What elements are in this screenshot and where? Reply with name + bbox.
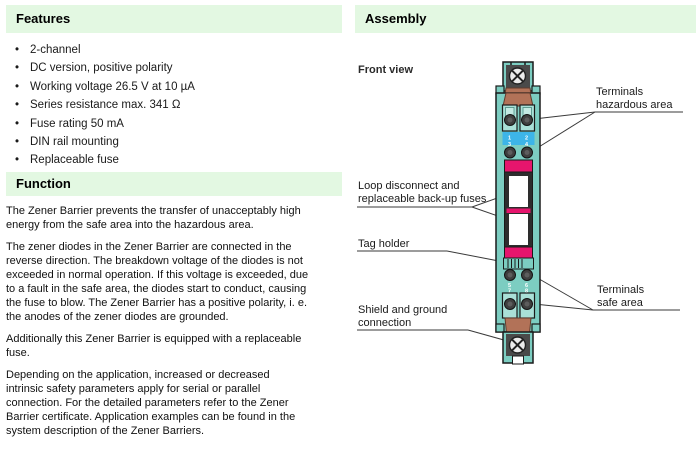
terminal-screw-center [508,150,513,155]
terminal-screw-center [525,302,530,307]
fuse-window-1 [509,176,528,207]
callout-terminals-safe: Terminals safe area [597,284,644,310]
front-view-label: Front view [358,64,413,76]
datasheet-page: Features •2-channel •DC version, positiv… [0,0,700,455]
callout-shield-ground: Shield and ground connection [358,304,447,330]
callout-terminals-hazardous: Terminals hazardous area [596,86,672,112]
fuse-pink-band-top [505,160,533,172]
terminal-screw-center [508,273,513,278]
terminal-screw-center [508,302,513,307]
terminal-screw-center [525,273,530,278]
callout-tag-holder: Tag holder [358,238,409,251]
bottom-shoulder [496,324,504,332]
fuse-divider [507,209,531,214]
terminal-number: 2 [525,136,528,142]
terminal-screw-center [525,118,530,123]
fuse-window-2 [509,214,528,245]
terminal-screw-center [525,150,530,155]
terminal-screw-center [508,118,513,123]
top-clamp-base [503,93,533,106]
bottom-tab-notch [513,356,524,364]
callout-loop-disconnect: Loop disconnect and replaceable back-up … [358,180,486,206]
fuse-pink-band-bottom [505,247,533,258]
bottom-shoulder [532,324,540,332]
assembly-diagram: 1 2 3 4 [0,0,700,455]
zener-barrier-device: 1 2 3 4 [496,62,540,364]
terminal-number: 1 [508,136,511,142]
